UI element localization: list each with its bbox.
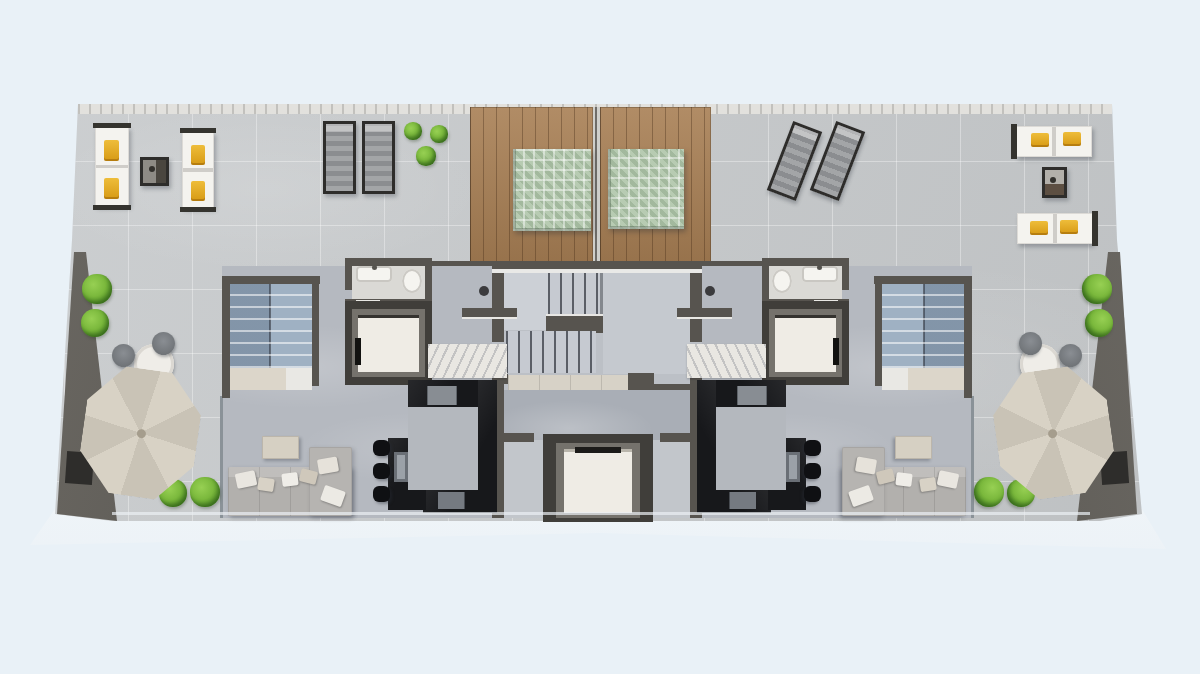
wall-light-right (705, 286, 715, 296)
shrub-plant (404, 122, 422, 140)
private-elevator-cab-right (775, 315, 836, 372)
toilet-right (772, 269, 792, 293)
shrub-plant (430, 125, 448, 143)
bar-stool-right (804, 463, 821, 479)
stairbox-wall-side-right (964, 276, 972, 398)
coffee-table-right (895, 436, 932, 459)
shrub-plant (416, 146, 436, 166)
stair-landing-white-right (882, 368, 908, 390)
stairbox-wall-top-right (874, 276, 972, 284)
bottom-window-wall (112, 512, 1090, 515)
half-right (0, 0, 1194, 674)
marble-entry-rug-right (687, 344, 766, 378)
private-staircase-right (882, 284, 964, 368)
sofa-cushion (919, 477, 937, 492)
patio-chair-right (1019, 332, 1042, 355)
entry-wall-stub-right (677, 308, 732, 319)
private-elevator-door-right (833, 338, 839, 365)
bar-stool-right (804, 440, 821, 456)
bathroom-sink-right (802, 266, 838, 282)
bar-stool-right (804, 486, 821, 502)
stair-landing-beige-right (908, 368, 964, 390)
shrub-plant (974, 477, 1004, 507)
stairbox-wall-inner-right (875, 276, 882, 386)
kitchen-floor-right (716, 407, 786, 490)
parapet-wedge-right (0, 0, 1194, 674)
terrace-glass-wall-right (971, 396, 974, 518)
sofa-cushion (855, 456, 877, 474)
shrub-plant (1082, 274, 1112, 304)
shrub-plant (1085, 309, 1113, 337)
sofa-cushion (895, 472, 912, 487)
bathroom-wall-top-right (762, 258, 849, 266)
floorplan-canvas (0, 0, 1200, 674)
cooktop-right (729, 492, 756, 509)
bathroom-wall-side-right (841, 258, 849, 290)
patio-chair-right (1059, 344, 1082, 367)
kitchen-sink-right (786, 452, 800, 482)
kitchen-appliance-right (737, 386, 767, 405)
